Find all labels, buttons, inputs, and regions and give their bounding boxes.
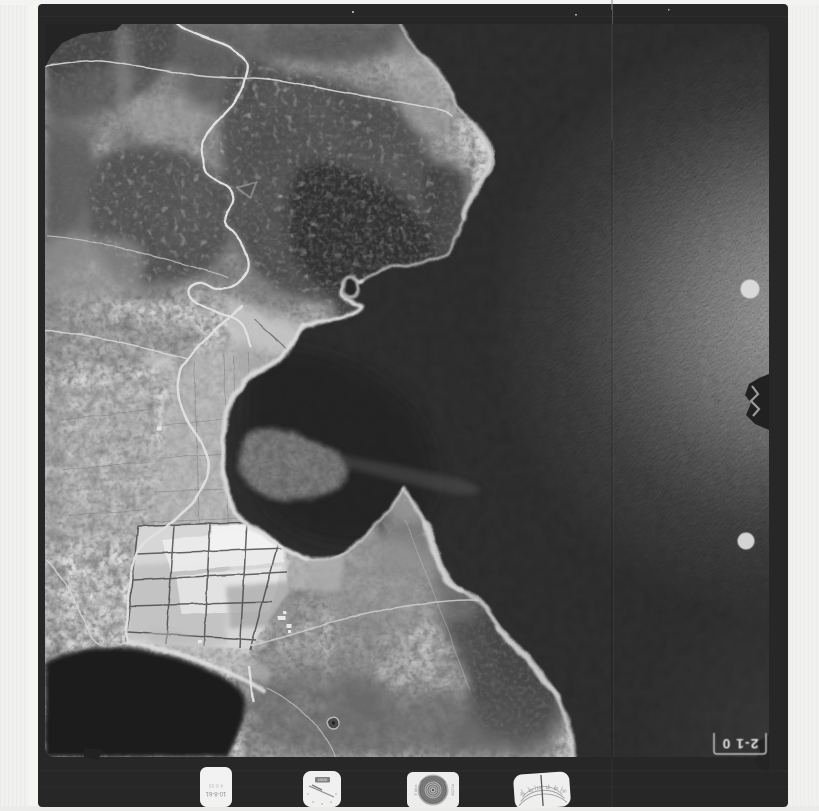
svg-text:43271A: 43271A <box>451 783 455 795</box>
svg-text:2-1 0: 2-1 0 <box>722 736 759 752</box>
svg-text:10-8-61: 10-8-61 <box>205 790 226 796</box>
svg-text:4·8·09: 4·8·09 <box>209 782 224 788</box>
svg-text:88888: 88888 <box>318 778 328 782</box>
svg-text:E 88 m: E 88 m <box>414 784 418 795</box>
